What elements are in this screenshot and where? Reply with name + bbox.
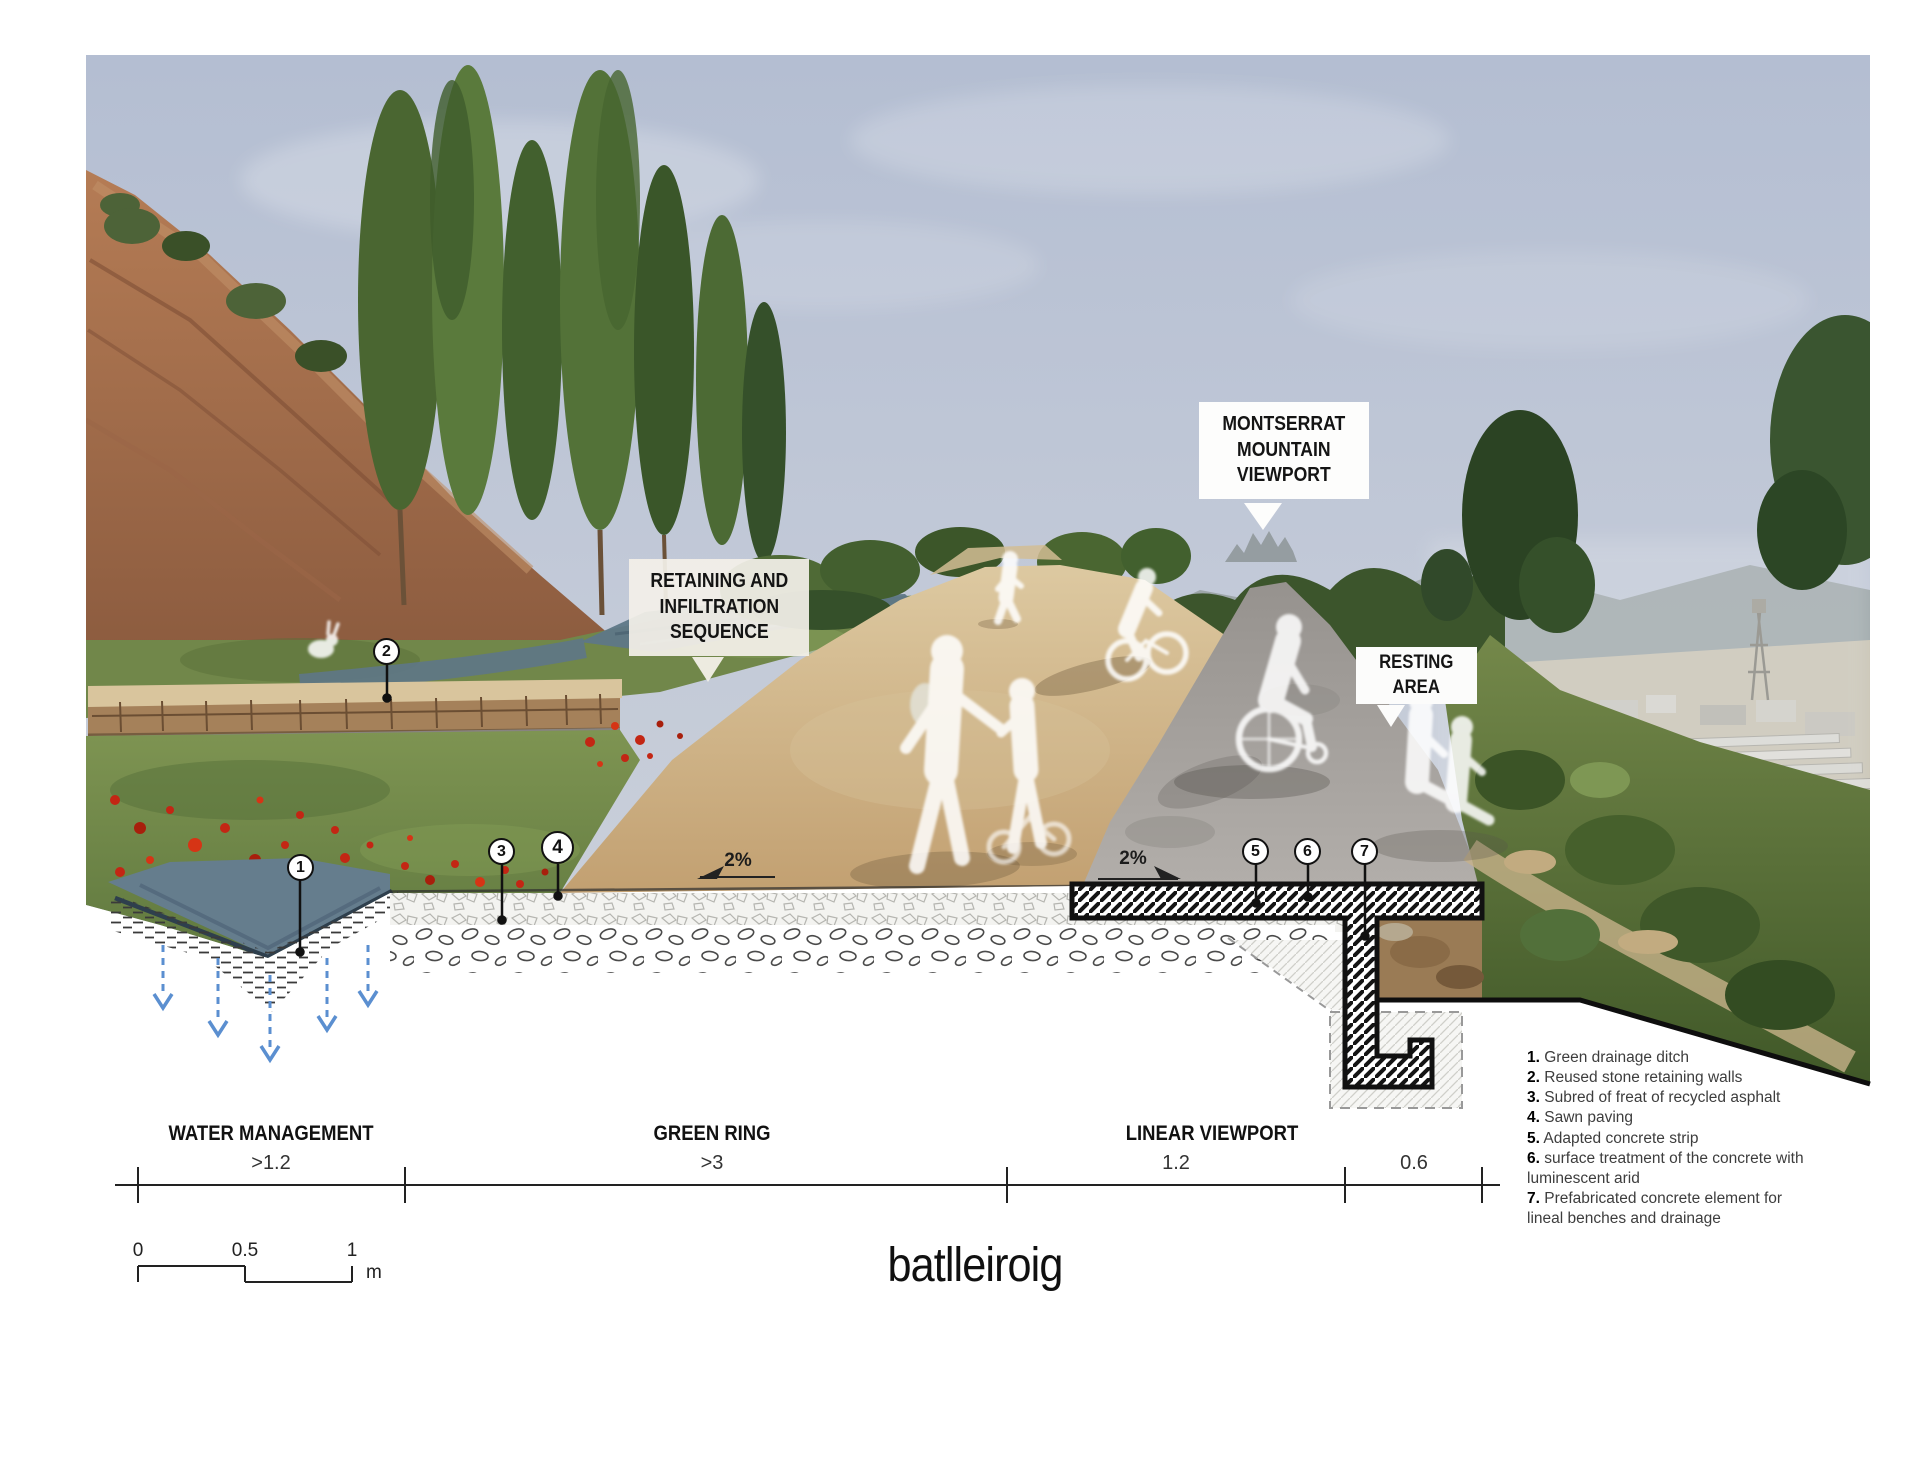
dimension-value: 1.2 (1162, 1152, 1190, 1175)
marker-4: 4 (541, 831, 574, 864)
marker-1: 1 (287, 854, 314, 881)
label-line: VIEWPORT (1223, 463, 1346, 489)
marker-2: 2 (373, 638, 400, 665)
dimension-value: >3 (701, 1152, 724, 1175)
dimension-value: 0.6 (1400, 1152, 1428, 1175)
legend-item: 7. Prefabricated concrete element for li… (1527, 1189, 1819, 1229)
scale-tick-0: 0 (133, 1240, 144, 1262)
label-line: RETAINING AND (650, 569, 788, 595)
label-line: MONTSERRAT (1223, 412, 1346, 438)
scale-unit: m (366, 1262, 382, 1284)
dimension-name-green-ring: GREEN RING (653, 1122, 770, 1146)
montserrat-pointer-icon (1244, 503, 1282, 530)
label-line: MOUNTAIN (1223, 438, 1346, 464)
subbase-wedge (1232, 940, 1345, 1010)
scale-tick-05: 0.5 (232, 1240, 258, 1262)
legend-item: 6. surface treatment of the concrete wit… (1527, 1149, 1819, 1189)
subbase-mosaic (390, 893, 1072, 925)
retaining-pointer-icon (692, 657, 724, 682)
resting-pointer-icon (1377, 705, 1405, 727)
label-line: INFILTRATION (650, 595, 788, 621)
dimension-value: >1.2 (251, 1152, 290, 1175)
label-line: SEQUENCE (650, 620, 788, 646)
label-line: AREA (1379, 676, 1453, 700)
dimension-lines (115, 1167, 1500, 1203)
dirt-under-flange (1377, 918, 1484, 1000)
scale-bar (138, 1266, 352, 1282)
slope-annotation-right: 2% (1119, 848, 1146, 870)
resting-area-label: RESTING AREA (1356, 647, 1477, 704)
marker-6: 6 (1294, 838, 1321, 865)
gravel-ovals (390, 925, 1335, 973)
section-drawing: MONTSERRAT MOUNTAIN VIEWPORT RETAINING A… (0, 0, 1920, 1475)
legend-item: 4. Sawn paving (1527, 1108, 1819, 1128)
legend-item: 1. Green drainage ditch (1527, 1048, 1819, 1068)
stone-wall (88, 679, 622, 736)
legend-item: 3. Subred of freat of recycled asphalt (1527, 1088, 1819, 1108)
marker-5: 5 (1242, 838, 1269, 865)
montserrat-viewport-label: MONTSERRAT MOUNTAIN VIEWPORT (1199, 402, 1369, 499)
retaining-infiltration-label: RETAINING AND INFILTRATION SEQUENCE (629, 559, 809, 656)
marker-7: 7 (1351, 838, 1378, 865)
batlleiroig-logo: batlleiroig (887, 1238, 1062, 1293)
dimension-name-water-management: WATER MANAGEMENT (169, 1122, 374, 1146)
label-line: RESTING (1379, 651, 1453, 675)
dimension-name-linear-viewport: LINEAR VIEWPORT (1126, 1122, 1298, 1146)
marker-3: 3 (488, 838, 515, 865)
scale-tick-1: 1 (347, 1240, 358, 1262)
legend-item: 5. Adapted concrete strip (1527, 1129, 1819, 1149)
legend: 1. Green drainage ditch 2. Reused stone … (1527, 1048, 1819, 1229)
legend-item: 2. Reused stone retaining walls (1527, 1068, 1819, 1088)
slope-annotation-left: 2% (724, 850, 751, 872)
